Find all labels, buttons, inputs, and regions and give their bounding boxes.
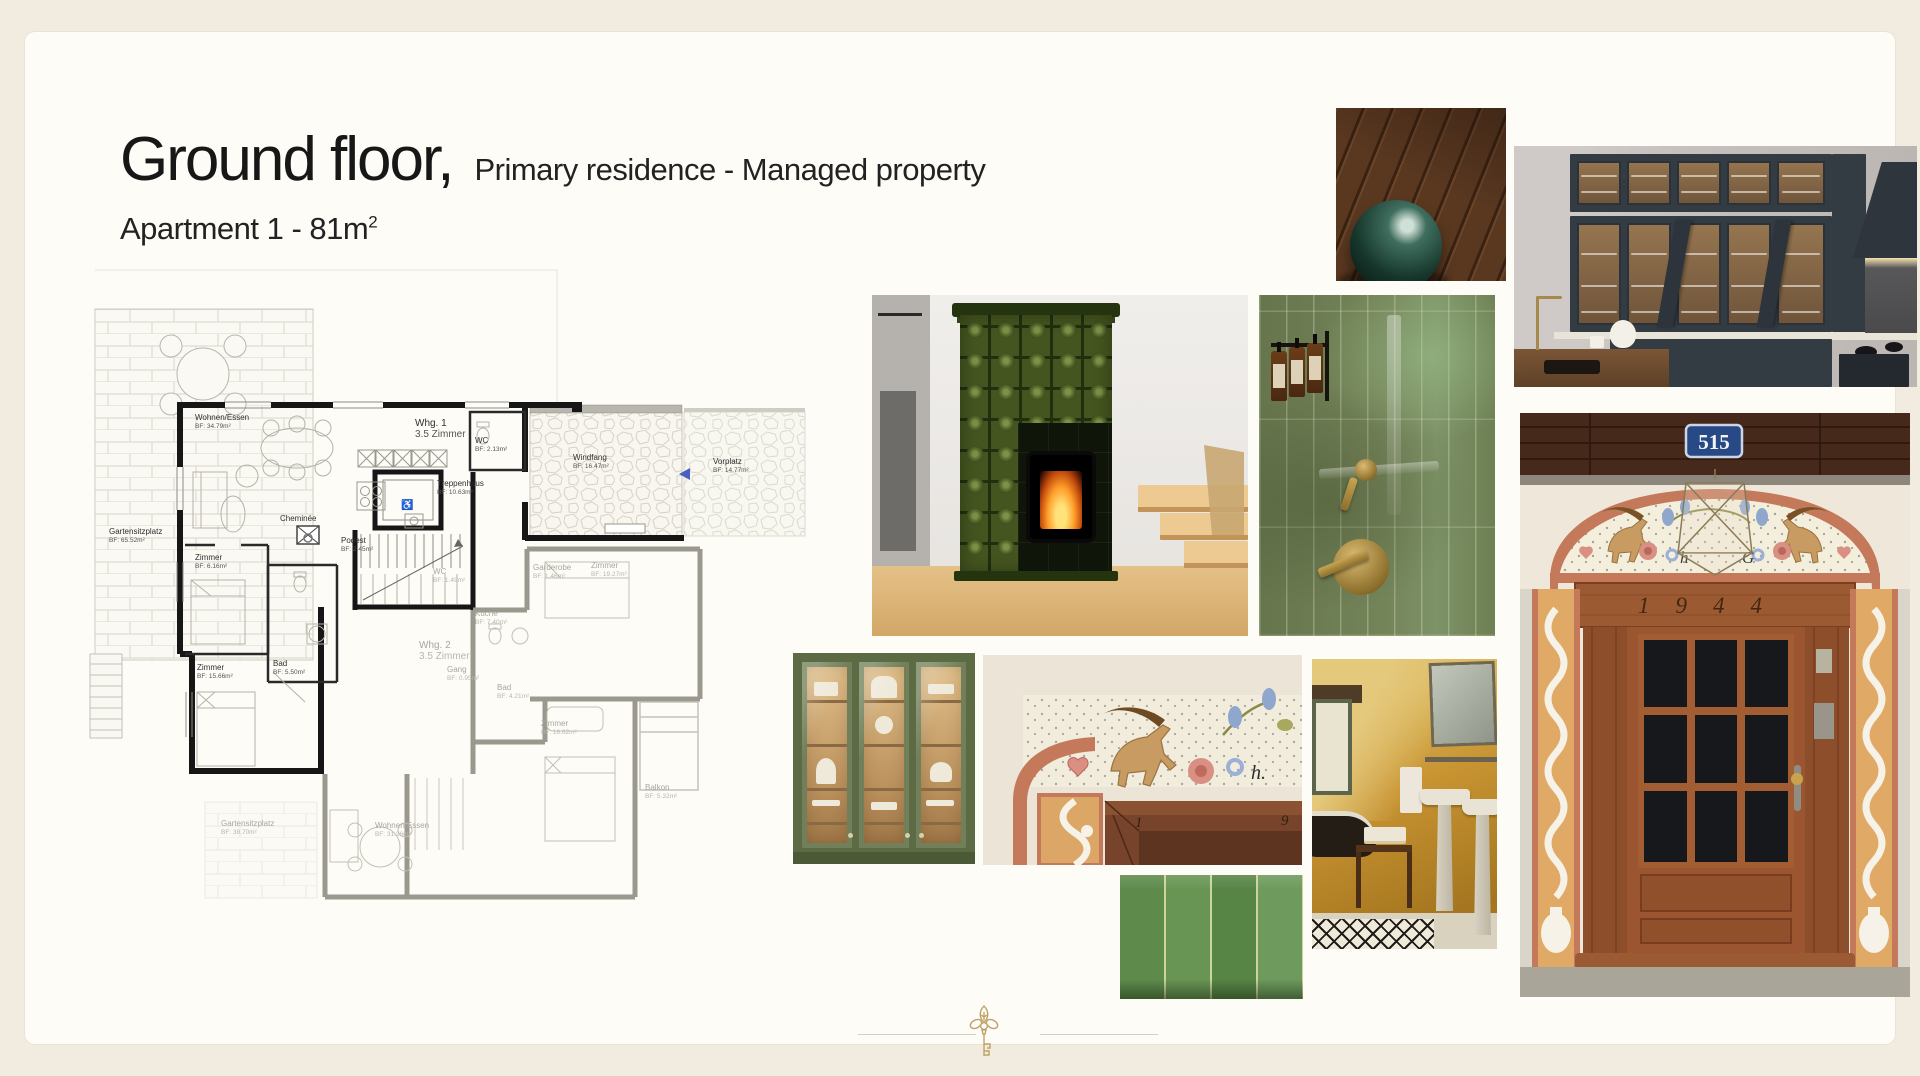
cabinet-door (802, 662, 852, 848)
page-subtitle: Apartment 1 - 81m2 (120, 211, 985, 247)
soap-bottle (1307, 343, 1323, 393)
fresco-initial: h. (1251, 762, 1266, 784)
towel-stack (1364, 827, 1406, 841)
hanging-towels (1400, 767, 1422, 813)
room-label: WindfangBF: 16.47m² (573, 453, 610, 470)
room-label: Whg. 23.5 Zimmer (419, 640, 470, 662)
garden-terrace (95, 309, 313, 660)
wire-lantern (1678, 469, 1752, 575)
fresco-detail-photo: h. 1 9 (983, 655, 1302, 865)
garden-terrace-2 (205, 802, 317, 898)
subtitle-superscript: 2 (368, 213, 377, 232)
fresco-digit-right: 9 (1281, 813, 1289, 829)
cup (1590, 336, 1604, 348)
painted-door-scene: 515 (1520, 413, 1910, 997)
wood-floor-sphere-photo (1336, 108, 1506, 281)
floor-plan: ♿ (75, 262, 825, 902)
glaze-streak (1319, 461, 1439, 479)
island-sink (1544, 360, 1600, 374)
wood-stool (1356, 845, 1412, 908)
room-label: ZimmerBF: 16.62m² (541, 719, 578, 736)
room-label: ZimmerBF: 15.66m² (197, 663, 234, 680)
wheelchair-symbol: ♿ (401, 498, 413, 511)
room-label: Whg. 13.5 Zimmer (415, 418, 466, 440)
carved-year: 1944 (1638, 593, 1788, 618)
door-glass (1641, 637, 1791, 865)
outdoor-stair (90, 654, 122, 738)
door-panel (1641, 919, 1791, 943)
room-label: BadBF: 4.21m² (497, 683, 530, 700)
soap-bottle (1271, 351, 1287, 401)
door-knob (1791, 773, 1803, 785)
house-number: 515 (1698, 430, 1730, 454)
brass-faucet-spout (1536, 296, 1562, 299)
door-post-right (1805, 627, 1849, 965)
room-label: BadBF: 5.50m² (273, 659, 306, 676)
door-handle-plate (1794, 765, 1801, 811)
right-counter (1832, 333, 1917, 340)
glaze-streak (1387, 315, 1401, 515)
entry-stone-areas (530, 405, 805, 536)
oven (1839, 354, 1909, 387)
door-threshold (1575, 953, 1855, 969)
cabinet-base-rail (793, 852, 975, 864)
footer-divider (858, 1034, 1158, 1036)
pilaster-left (1532, 589, 1580, 967)
pilaster-right (1850, 589, 1898, 967)
bottle-rack-bracket (1325, 331, 1329, 401)
divider-line-left (858, 1034, 976, 1035)
door-post-left (1583, 627, 1627, 965)
divider-line-right (1040, 1034, 1158, 1035)
room-label: WCBF: 2.13m² (475, 436, 508, 453)
mirror (1432, 664, 1495, 744)
under-cabinet-light (1865, 258, 1917, 268)
attic-bathroom-photo (1312, 659, 1497, 949)
balcony (640, 702, 698, 790)
geometric-rug (1312, 919, 1434, 949)
green-shower-photo (1259, 295, 1495, 636)
doorbell-plate (1816, 649, 1832, 673)
fresco-scroll-panel (1039, 795, 1101, 865)
cabinet-knob (919, 833, 924, 838)
brochure-page: Ground floor, Primary residence - Manage… (0, 0, 1920, 1076)
room-label: GarderobeBF: 1.46m² (533, 563, 572, 580)
stone-ground (1520, 967, 1910, 997)
page-card: Ground floor, Primary residence - Manage… (25, 32, 1895, 1044)
key-logo-icon (966, 1004, 1002, 1062)
fresco-detail-scene: h. 1 9 (983, 655, 1302, 865)
fireplace-symbol (297, 526, 319, 544)
soap-bottle (1289, 347, 1305, 397)
room-label: Wohnen/EssenBF: 31.36m² (375, 821, 429, 838)
shower-valve-lever (1340, 477, 1358, 512)
stove-burner (1885, 342, 1903, 352)
room-label: PodestBF: 2.45m² (341, 536, 374, 553)
kitchen-photo (1514, 146, 1917, 387)
cabinet-knob (905, 833, 910, 838)
hallway-doorway (880, 391, 916, 551)
apartment2-walls (325, 549, 700, 897)
brass-faucet (1536, 298, 1539, 350)
mid-glass-cabinets (1570, 216, 1832, 332)
window (1312, 699, 1352, 795)
cabinet-knob (848, 833, 853, 838)
room-label: ZimmerBF: 19.27m² (591, 561, 628, 578)
ceiling-lamp (878, 313, 922, 316)
door-panel (1641, 875, 1791, 911)
teapot (1610, 320, 1636, 348)
room-label: TreppenhausBF: 10.63m² (437, 479, 484, 496)
stove-plinth (954, 571, 1118, 581)
stair-tread (1184, 541, 1248, 568)
shower-valve-flange (1355, 459, 1377, 481)
intercom-panel (1814, 703, 1834, 739)
green-cabinet-photo (793, 653, 975, 864)
green-tiles-photo (1120, 875, 1303, 999)
room-label: BalkonBF: 5.32m² (645, 783, 678, 800)
room-label: WCBF: 1.49m² (433, 567, 466, 584)
header: Ground floor, Primary residence - Manage… (120, 124, 985, 247)
painted-door-photo: 515 (1520, 413, 1910, 997)
fire-flames (1040, 471, 1082, 529)
wood-frame-corner: 1 9 (1105, 801, 1302, 865)
upper-glass-cabinets (1570, 154, 1832, 212)
page-title-suffix: Primary residence - Managed property (474, 152, 985, 188)
shelf (1425, 757, 1497, 762)
tiled-stove-photo (872, 295, 1248, 636)
cabinet-door (916, 662, 966, 848)
green-glass-sphere (1350, 200, 1442, 281)
cabinet-door (859, 662, 909, 848)
room-label: Cheminée (280, 514, 317, 523)
backsplash (1865, 258, 1917, 333)
page-title: Ground floor, (120, 124, 452, 195)
fresco-digit-left: 1 (1135, 815, 1143, 831)
